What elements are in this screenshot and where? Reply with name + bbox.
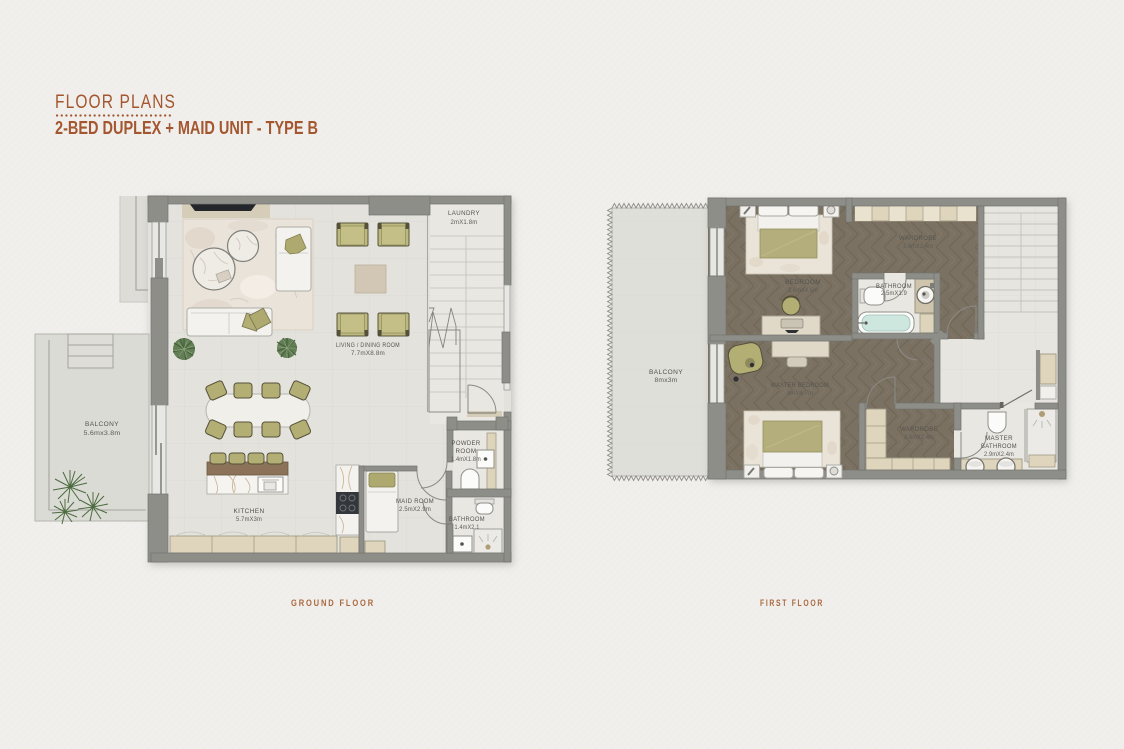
svg-text:3.6mX2.4m: 3.6mX2.4m: [903, 243, 933, 250]
svg-text:7.7mX8.8m: 7.7mX8.8m: [351, 350, 385, 357]
svg-text:2.9mX2.4m: 2.9mX2.4m: [984, 451, 1014, 458]
svg-text:BATHROOM: BATHROOM: [449, 516, 485, 523]
svg-text:BATHROOM: BATHROOM: [981, 443, 1017, 450]
svg-text:FLOOR PLANS: FLOOR PLANS: [55, 91, 176, 113]
svg-text:LIVING / DINING ROOM: LIVING / DINING ROOM: [336, 342, 400, 349]
svg-text:5.6mx3.8m: 5.6mx3.8m: [84, 430, 121, 437]
svg-text:1.4mX2.1: 1.4mX2.1: [455, 524, 480, 531]
svg-text:GROUND FLOOR: GROUND FLOOR: [291, 598, 375, 608]
svg-text:POWDER: POWDER: [452, 440, 481, 447]
svg-text:BALCONY: BALCONY: [85, 421, 119, 428]
svg-text:MASTER BEDROOM: MASTER BEDROOM: [771, 382, 829, 389]
svg-text:MASTER: MASTER: [985, 435, 1013, 442]
svg-text:3.6mX2.4m: 3.6mX2.4m: [904, 434, 934, 441]
svg-text:KITCHEN: KITCHEN: [234, 508, 265, 515]
svg-text:LAUNDRY: LAUNDRY: [448, 210, 480, 217]
svg-text:8mx3m: 8mx3m: [655, 377, 678, 384]
svg-text:5.7mX3m: 5.7mX3m: [236, 516, 262, 523]
svg-text:FIRST FLOOR: FIRST FLOOR: [760, 598, 824, 608]
svg-text:ROOM: ROOM: [456, 448, 477, 455]
svg-text:MAID ROOM: MAID ROOM: [396, 498, 434, 505]
svg-text:1.4mX1.8m: 1.4mX1.8m: [451, 456, 481, 463]
svg-text:2-BED DUPLEX + MAID UNIT - TYP: 2-BED DUPLEX + MAID UNIT - TYPE B: [55, 117, 318, 138]
svg-text:BATHROOM: BATHROOM: [876, 283, 912, 290]
svg-text:WARDROBE: WARDROBE: [900, 426, 938, 433]
svg-text:BEDROOM: BEDROOM: [785, 279, 821, 286]
svg-text:2.5mX2.9m: 2.5mX2.9m: [399, 506, 431, 513]
svg-text:4mX4.7m: 4mX4.7m: [787, 390, 813, 397]
svg-text:2mX1.8m: 2mX1.8m: [451, 219, 478, 226]
svg-text:BALCONY: BALCONY: [649, 369, 683, 376]
svg-text:3.6mX4.5m: 3.6mX4.5m: [788, 287, 818, 294]
svg-text:WARDROBE: WARDROBE: [899, 235, 937, 242]
svg-text:2.5mX1.9: 2.5mX1.9: [881, 290, 907, 297]
